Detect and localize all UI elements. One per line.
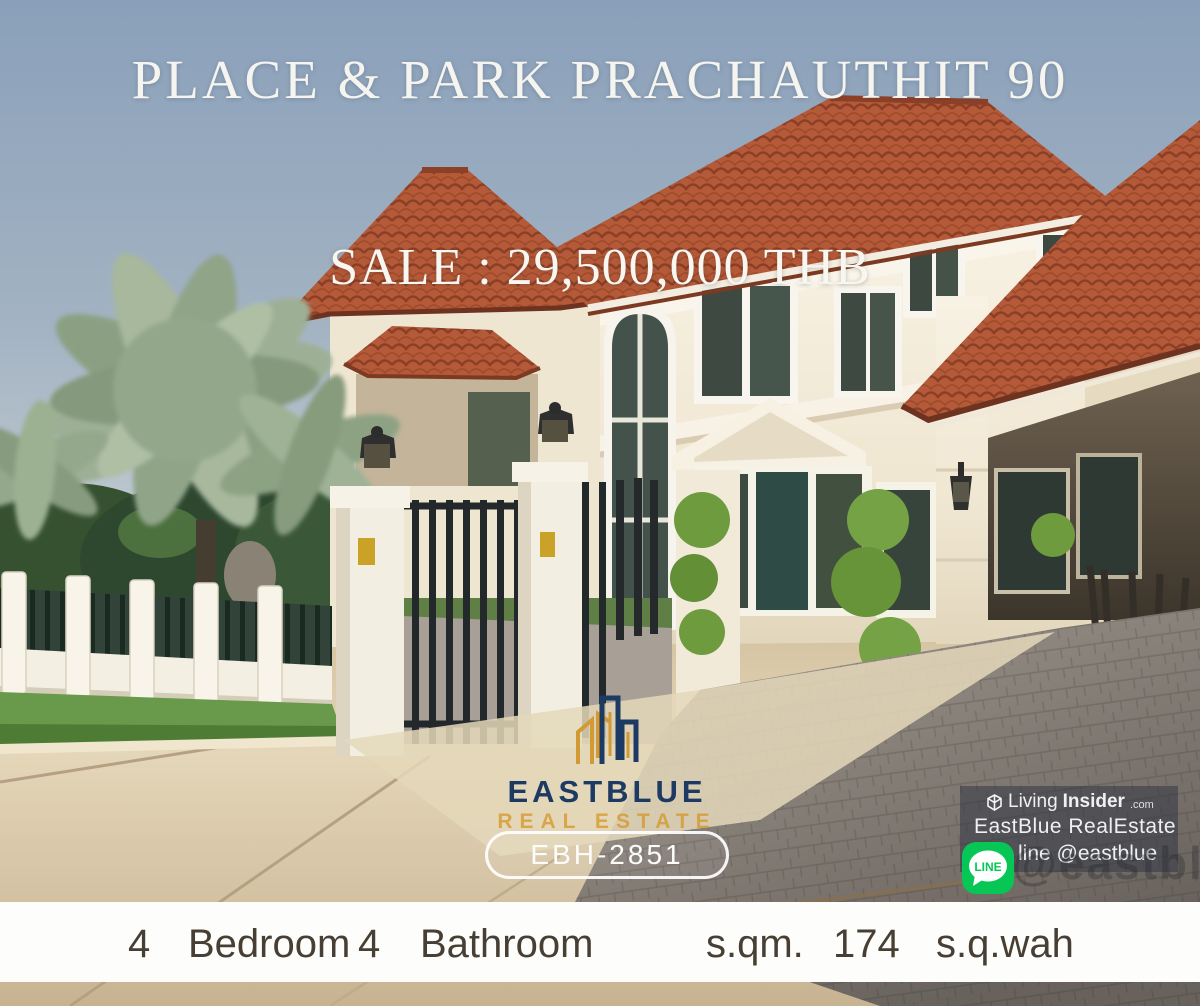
- livinginsider-watermark: LivingInsider.com: [986, 791, 1178, 813]
- details-bar: 4 Bedroom 4 Bathroom s.qm. 174 s.q.wah: [0, 902, 1200, 982]
- project-title: PLACE & PARK PRACHAUTHIT 90: [0, 48, 1200, 111]
- ghost-handle-watermark: @eastblue: [1012, 836, 1200, 890]
- cube-icon: [986, 794, 1003, 811]
- wah-unit-label: s.q.wah: [936, 902, 1074, 982]
- watermark-dotcom: .com: [1130, 799, 1154, 811]
- property-listing-poster: PLACE & PARK PRACHAUTHIT 90 SALE : 29,50…: [0, 0, 1200, 1006]
- sqm-unit-label: s.qm.: [706, 902, 804, 982]
- listing-code: EBH-2851: [485, 831, 728, 879]
- sale-price: SALE : 29,500,000 THB: [0, 238, 1200, 297]
- watermark-insider: Insider: [1063, 791, 1125, 813]
- watermark-living: Living: [1008, 791, 1058, 813]
- bedroom-label: Bedroom: [188, 902, 350, 982]
- buildings-logo-icon: [564, 688, 650, 770]
- line-app-icon: LINE: [961, 841, 1015, 895]
- bathroom-label: Bathroom: [420, 902, 593, 982]
- land-area-value: 174: [833, 902, 900, 982]
- bathroom-count: 4: [358, 902, 380, 982]
- svg-text:LINE: LINE: [974, 860, 1001, 874]
- bedroom-count: 4: [128, 902, 150, 982]
